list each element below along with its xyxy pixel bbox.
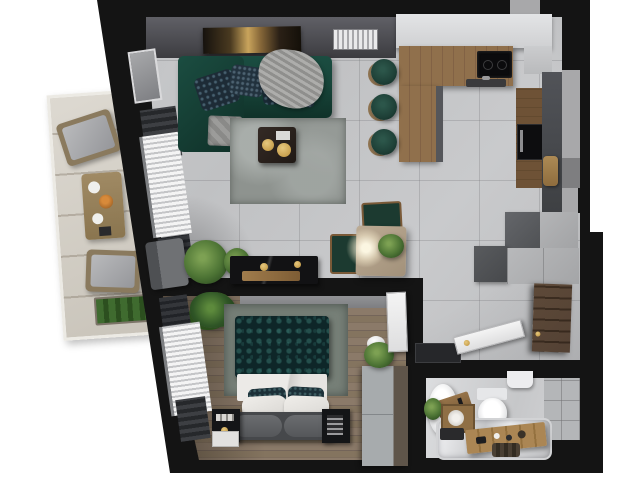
candle <box>260 263 268 271</box>
doormat <box>415 343 461 363</box>
nightstand-right <box>322 409 350 443</box>
headboard-cushion <box>233 415 282 437</box>
bedroom-door <box>386 292 408 353</box>
fruit-bowl <box>99 194 114 209</box>
kitchen-sink <box>466 79 506 87</box>
oven-handle <box>520 130 523 152</box>
tub-faucet <box>440 428 464 440</box>
plate <box>92 213 104 225</box>
faucet <box>482 76 490 80</box>
exterior-wall-face <box>561 158 580 188</box>
gold-tray <box>277 143 291 157</box>
candle <box>294 261 301 268</box>
paper-holder <box>507 371 533 388</box>
toiletries <box>506 434 513 441</box>
door-handle <box>463 339 470 346</box>
cooktop-ring <box>497 60 507 70</box>
wardrobe-cabinet <box>505 212 540 248</box>
bar-stool <box>371 94 397 120</box>
built-in-oven <box>517 124 543 160</box>
wardrobe-cabinet <box>507 248 579 284</box>
white-tray <box>212 431 239 447</box>
cabinet-panel-dark <box>542 72 562 213</box>
entrance-door <box>532 283 572 352</box>
headboard <box>230 412 336 440</box>
bathroom-side-wall <box>406 360 426 462</box>
ceiling-vent <box>333 29 378 50</box>
papers <box>276 131 290 140</box>
planter-box <box>94 294 152 326</box>
wardrobe-seam <box>543 248 544 284</box>
breakfast-bar-edge <box>436 86 443 162</box>
console-table <box>230 256 318 284</box>
dresser <box>362 366 408 466</box>
gold-tray <box>262 139 274 151</box>
induction-cooktop <box>477 51 512 78</box>
armchair-cushion <box>90 255 135 289</box>
toiletries <box>517 430 526 439</box>
wardrobe-cabinet <box>540 212 578 248</box>
bar-stool <box>371 129 397 155</box>
potted-plant-large <box>184 240 228 284</box>
breakfast-bar <box>399 86 436 162</box>
armchair-cushion <box>61 114 115 161</box>
books <box>216 414 234 421</box>
bathroom-plant <box>424 398 442 420</box>
dark-basket <box>492 443 520 457</box>
curtain-bedroom-bottom <box>175 396 211 442</box>
plate <box>88 181 101 194</box>
decor-item <box>327 415 343 435</box>
toiletries <box>493 433 500 440</box>
rolled-towel <box>448 410 464 426</box>
exterior-wall-face <box>560 70 580 158</box>
dresser-seam <box>362 414 393 415</box>
floor-plan-render <box>0 0 640 480</box>
wardrobe-cabinet <box>474 246 507 282</box>
outdoor-armchair-bottom <box>85 249 140 293</box>
kitchen-countertop-return <box>524 46 552 74</box>
outdoor-armchair-top <box>55 108 122 167</box>
bar-stool <box>371 59 397 85</box>
exterior-wall-face <box>561 188 578 214</box>
cutting-board <box>543 156 558 186</box>
coffee-table <box>258 127 296 163</box>
outdoor-coffee-table <box>81 171 126 240</box>
entrance-door-handle <box>535 331 540 336</box>
book <box>99 226 112 236</box>
kitchen-countertop <box>396 14 552 48</box>
wooden-tray <box>242 271 300 281</box>
cooktop-ring <box>483 60 493 70</box>
lounge-chair <box>145 238 189 291</box>
dining-table-plant <box>378 234 404 258</box>
soap-dish <box>476 436 487 444</box>
bed-duvet <box>235 316 329 378</box>
